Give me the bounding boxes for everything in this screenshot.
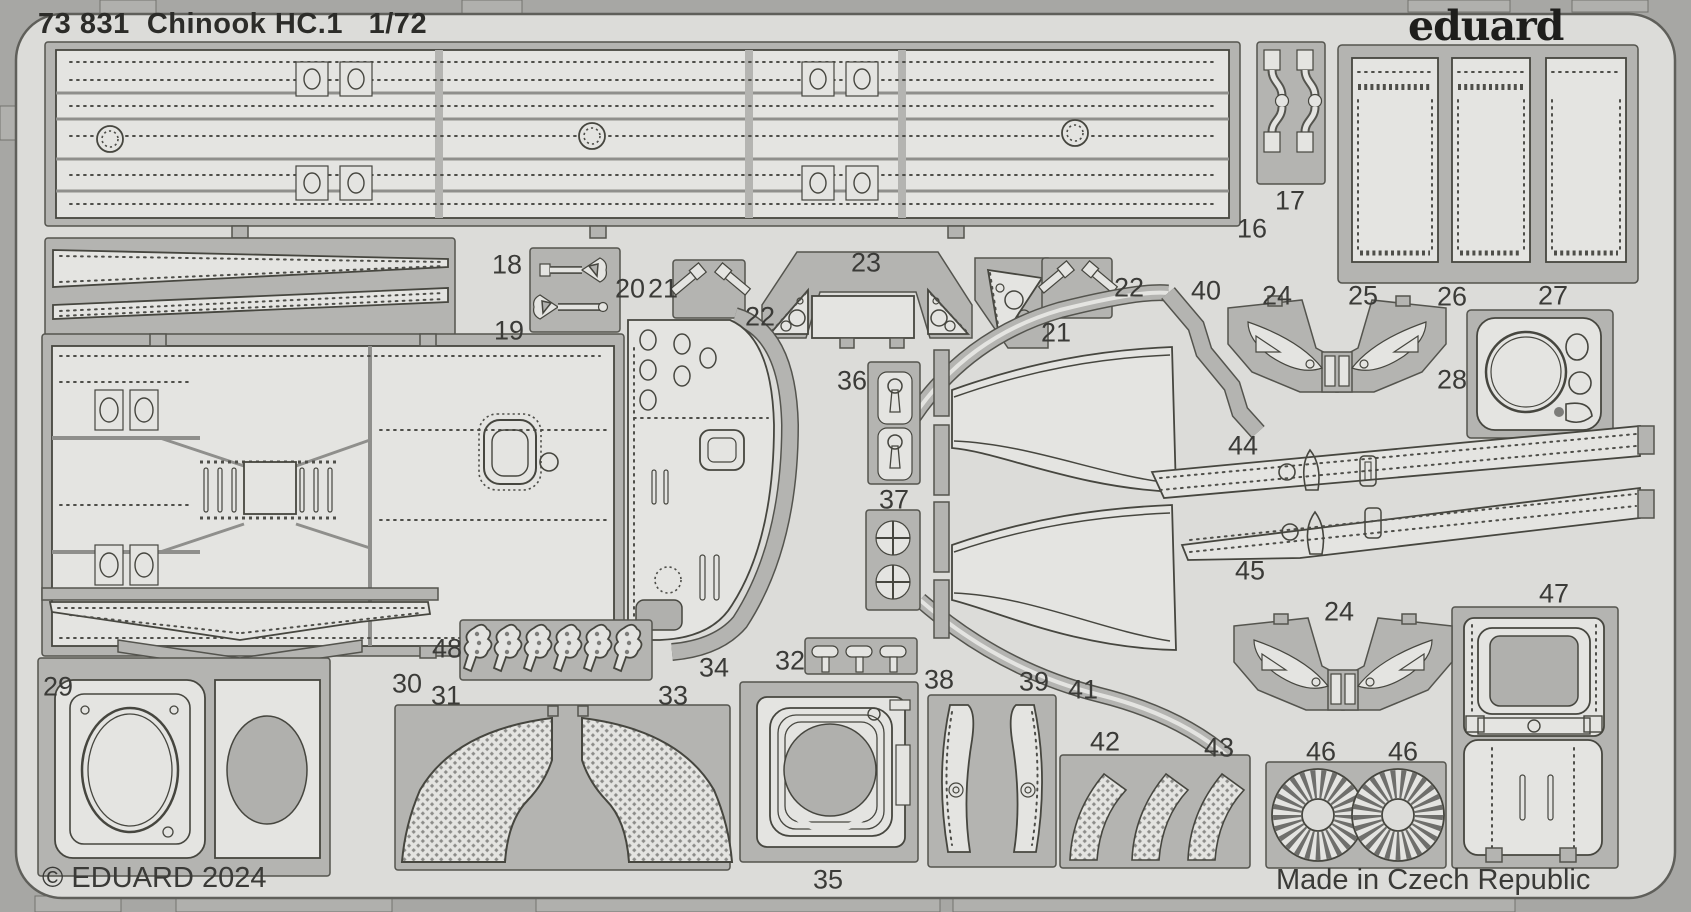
part-label-26: 26: [1437, 282, 1467, 313]
part-label-37: 37: [879, 485, 909, 516]
part-label-24b: 24: [1324, 597, 1354, 628]
parts-18-19-tapered-strips: [45, 238, 455, 336]
parts-31-33-mesh-dome: [395, 705, 732, 870]
part-label-17: 17: [1275, 186, 1305, 217]
part-label-24a: 24: [1262, 281, 1292, 312]
part-label-28: 28: [1437, 365, 1467, 396]
part-label-30: 30: [392, 669, 422, 700]
copyright-text: © EDUARD 2024: [42, 862, 266, 895]
parts-46-fan-discs: [1266, 762, 1446, 868]
sheet-title: 73 831 Chinook HC.1 1/72: [38, 8, 427, 41]
part-label-48: 48: [432, 634, 462, 665]
part-label-33: 33: [658, 681, 688, 712]
part-label-41: 41: [1068, 675, 1098, 706]
part-16-stringer-strips: [45, 42, 1240, 238]
part-label-34: 34: [699, 653, 729, 684]
fret-diagram: [0, 0, 1691, 912]
part-label-36: 36: [837, 366, 867, 397]
part-32-tees: [805, 638, 917, 674]
part-label-45: 45: [1235, 556, 1265, 587]
kit-name: Chinook HC.1: [147, 8, 343, 40]
part-label-46b: 46: [1388, 737, 1418, 768]
made-in-text: Made in Czech Republic: [1276, 864, 1590, 897]
part-label-40: 40: [1191, 276, 1221, 307]
part-17-links: [1257, 42, 1325, 184]
parts-42-43-mesh-sectors: [1060, 755, 1250, 868]
part-28-panel-plate: [1467, 310, 1613, 438]
parts-25-26-27-panels: [1338, 45, 1638, 283]
part-label-21b: 21: [1041, 318, 1071, 349]
part-label-22a: 22: [745, 302, 775, 333]
part-label-29: 29: [43, 672, 73, 703]
part-47-ramp-assembly: [1452, 607, 1618, 868]
part-35-housing: [740, 682, 918, 862]
part-label-25: 25: [1348, 281, 1378, 312]
part-20-keys: [530, 248, 620, 332]
part-label-32: 32: [775, 646, 805, 677]
part-label-43: 43: [1204, 733, 1234, 764]
part-label-42: 42: [1090, 727, 1120, 758]
part-37-cross-discs: [866, 510, 920, 610]
part-label-16: 16: [1237, 214, 1267, 245]
part-36-keyhole-plates: [868, 362, 920, 484]
part-label-39: 39: [1019, 667, 1049, 698]
part-label-23: 23: [851, 248, 881, 279]
part-label-19: 19: [494, 316, 524, 347]
kit-scale: 1/72: [369, 8, 427, 40]
part-label-47: 47: [1539, 579, 1569, 610]
part-label-35: 35: [813, 865, 843, 896]
part-label-44: 44: [1228, 431, 1258, 462]
part-label-20: 20: [615, 274, 645, 305]
part-label-31: 31: [431, 681, 461, 712]
part-label-46a: 46: [1306, 737, 1336, 768]
parts-38-39-blades: [928, 695, 1056, 867]
part-label-21a: 21: [648, 274, 678, 305]
parts-lamp-frames: [38, 658, 330, 876]
part-48-brackets: [460, 620, 652, 680]
part-label-22b: 22: [1114, 273, 1144, 304]
catalog-number: 73 831: [38, 8, 130, 40]
part-label-18: 18: [492, 250, 522, 281]
part-label-27: 27: [1538, 281, 1568, 312]
part-label-38: 38: [924, 665, 954, 696]
photo-etch-fret-sheet: 73 831 Chinook HC.1 1/72 eduard © EDUARD…: [0, 0, 1691, 912]
eduard-logo: eduard: [1408, 2, 1563, 50]
